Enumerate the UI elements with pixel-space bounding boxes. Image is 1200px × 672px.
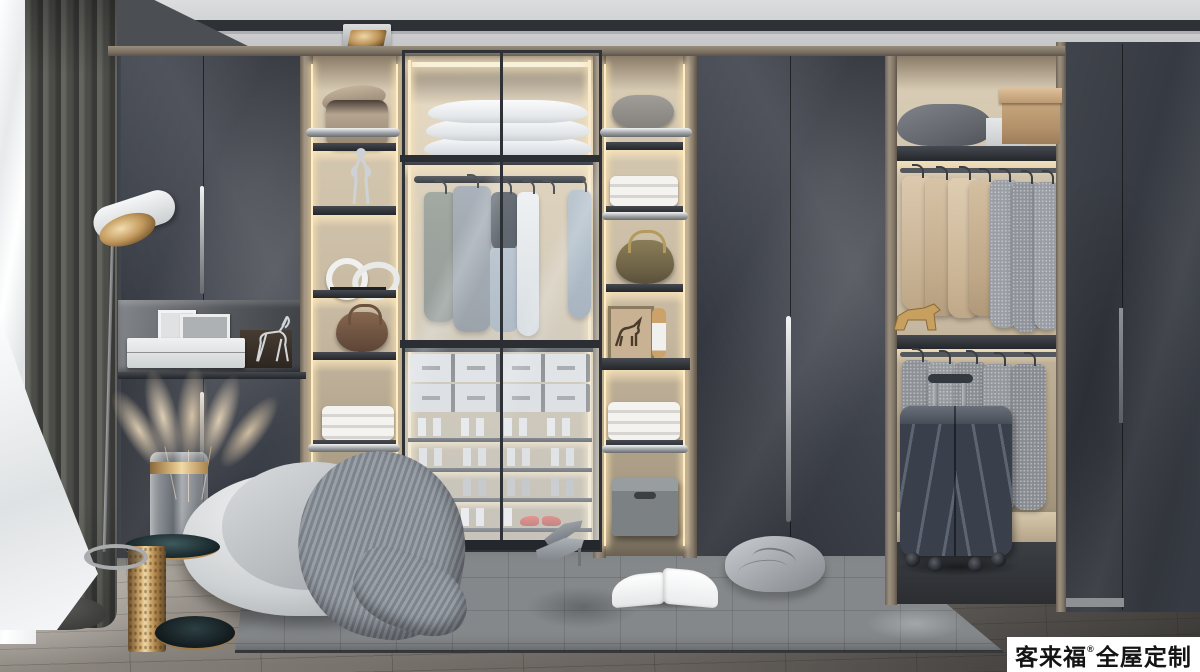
- gold-bottle-tall: [652, 308, 666, 358]
- round-gray-box: [612, 95, 674, 129]
- suitcase-wheel: [968, 557, 983, 572]
- suitcase-chevron-left: [900, 424, 956, 556]
- shelf-rail: [602, 445, 688, 453]
- right-wardrobe-shelf-2: [897, 335, 1060, 349]
- shelf-bar: [606, 142, 683, 150]
- double-door-wardrobe: [697, 54, 885, 556]
- brown-handbag-handle: [348, 304, 382, 325]
- brand-name: 客来福: [1015, 638, 1087, 672]
- gold-bull-figurine: [890, 300, 944, 336]
- stiletto-heel-pin: [578, 548, 581, 566]
- shelf-glow: [606, 370, 683, 384]
- shelf-bar: [313, 206, 396, 215]
- gray-sweater: [1012, 364, 1046, 510]
- shelf-glow: [313, 215, 396, 227]
- shelf-bar: [313, 290, 396, 298]
- towel-stack: [610, 176, 678, 206]
- right-wardrobe-shelf-1: [897, 146, 1060, 161]
- niche-jewelry-box: [127, 338, 245, 368]
- suitcase-wheel: [991, 552, 1006, 567]
- suitcase-wheel: [905, 552, 920, 567]
- horse-art: [612, 316, 644, 352]
- left-wardrobe-handle-top: [200, 186, 204, 294]
- brand-suffix: 全屋定制: [1096, 638, 1192, 672]
- deer-figurine: [244, 306, 300, 368]
- gray-pillow-top: [897, 104, 993, 146]
- suitcase-wheel: [928, 557, 943, 572]
- walk-in-closet-scene: 客来福®全屋定制: [0, 0, 1200, 672]
- shelf-bar: [606, 284, 683, 292]
- storage-stool-handle-slot: [634, 492, 656, 499]
- shelf-glow: [606, 292, 683, 304]
- suitcase-top-face: [900, 406, 1012, 424]
- suitcase-body: [900, 406, 1012, 556]
- glass-frame-mid-rail: [400, 340, 600, 348]
- glass-door-right: [500, 50, 602, 552]
- shelf-glow: [606, 150, 683, 162]
- olive-handbag-handle: [628, 230, 666, 253]
- registered-mark: ®: [1087, 645, 1095, 654]
- brand-watermark: 客来福®全屋定制: [1007, 637, 1200, 672]
- double-door-handle: [786, 316, 791, 522]
- gold-bottle-short: [668, 326, 680, 358]
- silver-figurine: [344, 146, 378, 208]
- niche-jewelry-box-drawer-line: [127, 352, 245, 353]
- kraft-box-lid: [999, 88, 1062, 103]
- leather-hat-box: [326, 100, 388, 148]
- towel-stack: [608, 402, 680, 440]
- shelf-rail: [602, 212, 688, 220]
- far-right-door-handle: [1119, 308, 1123, 423]
- storage-stool: [612, 478, 678, 536]
- shelf-rail: [306, 128, 400, 137]
- suitcase-chevron-right: [956, 424, 1012, 556]
- far-right-wardrobe: [1066, 42, 1200, 612]
- far-right-kick-strip: [1066, 598, 1124, 607]
- vase-gold-band: [150, 462, 208, 474]
- glass-frame-transom: [400, 155, 600, 162]
- shelf-glow: [313, 360, 396, 372]
- suitcase-handle-grip: [928, 374, 973, 383]
- side-table-lower-disc: [155, 616, 235, 650]
- towel-stack: [322, 406, 394, 440]
- shelf-rail: [600, 128, 692, 137]
- floor-lamp-base: [84, 544, 148, 570]
- suitcase-center-seam: [954, 406, 956, 556]
- column-divider: [600, 358, 690, 370]
- shelf-bar: [313, 352, 396, 360]
